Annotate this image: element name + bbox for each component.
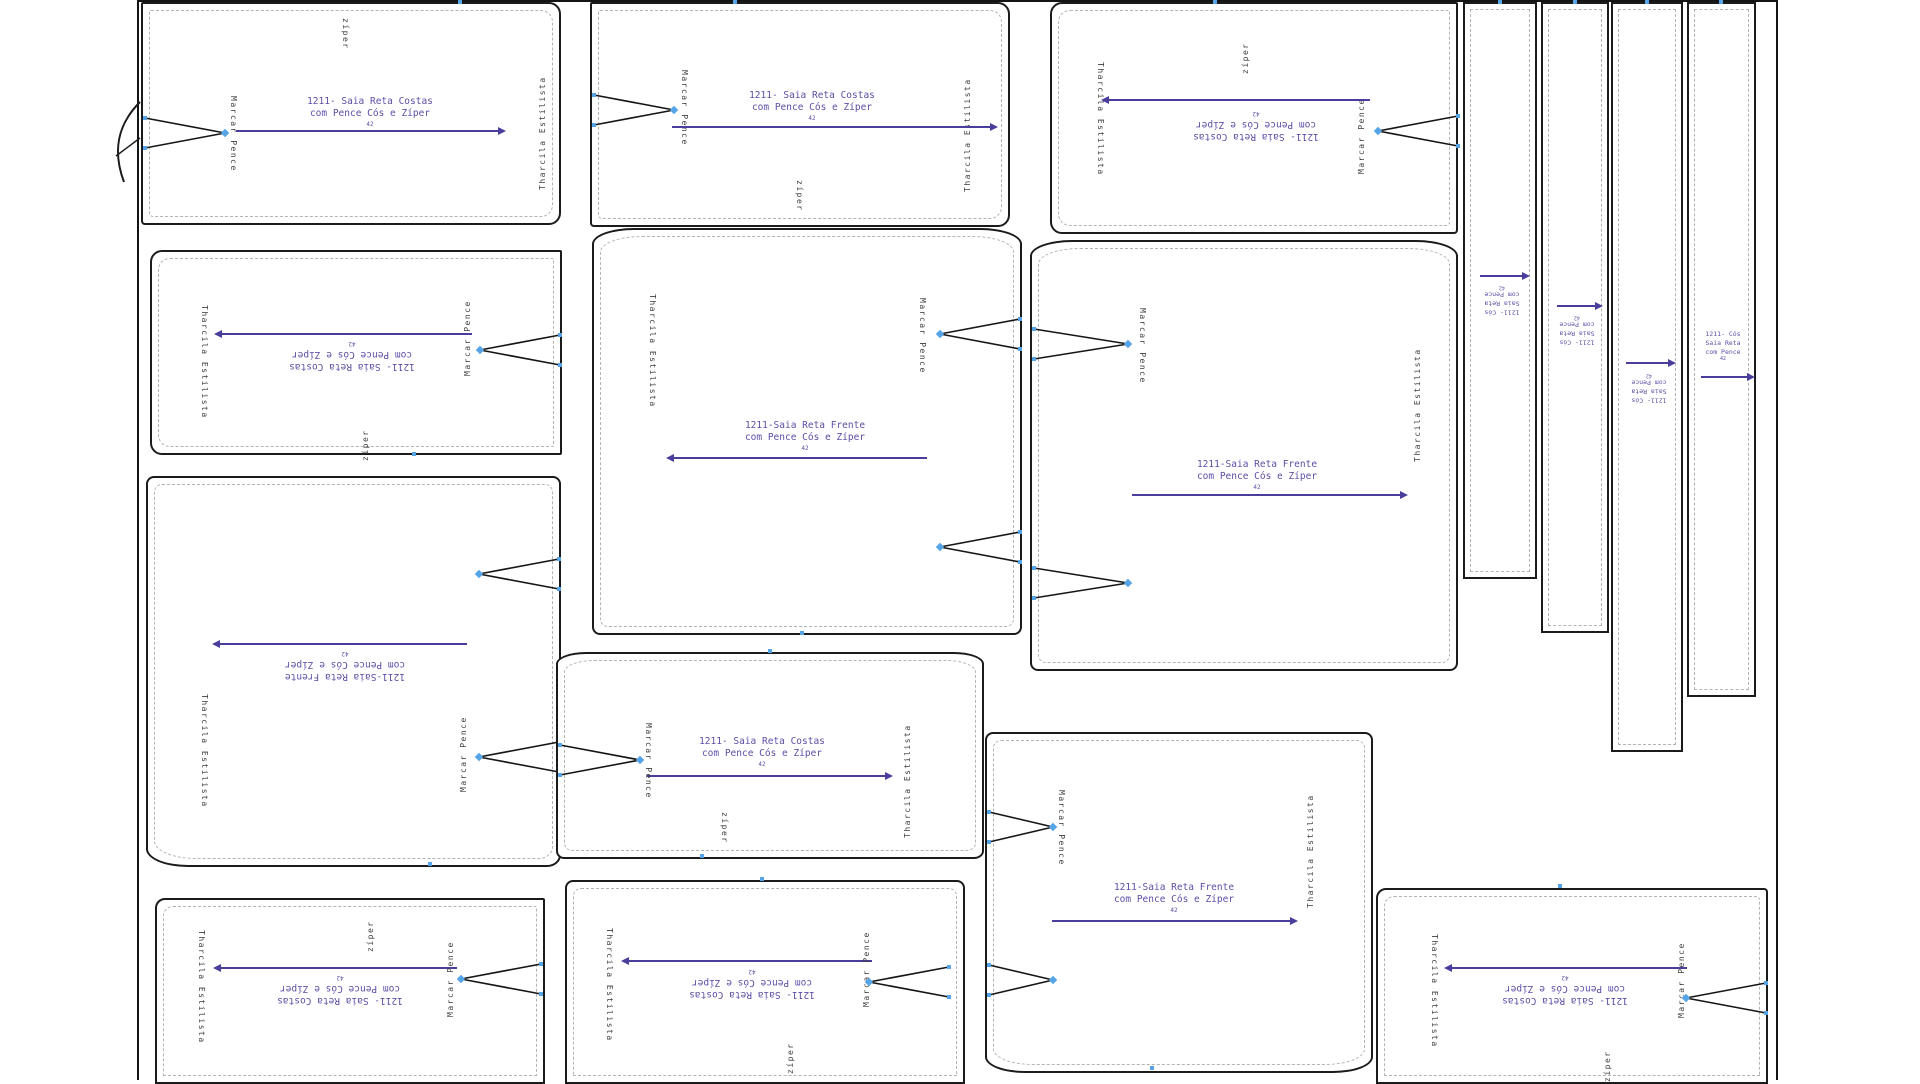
dart-mark [475,739,561,775]
pattern-piece-waistband-3[interactable]: 1211- Cós Saia Reta com Pence42 [1611,2,1683,752]
dart-mark [936,529,1022,565]
pattern-piece-back-b[interactable]: zíper Tharcila Estilista Marcar Pence 12… [590,2,1010,227]
piece-label: 1211- Saia Reta Costas com Pence Cós e Z… [712,90,912,122]
dart-mark [558,742,644,778]
grainline-arrow [218,643,467,645]
designer-label: Tharcila Estilista [1430,934,1438,1068]
notch-dot [1558,884,1562,888]
designer-label: Tharcila Estilista [197,930,205,1064]
grainline-arrow [1450,967,1687,969]
notch-dot [1719,0,1723,4]
size-label: 42 [1617,372,1681,378]
pattern-piece-waistband-1[interactable]: 1211- Cós Saia Reta com Pence42 [1463,2,1537,579]
pattern-piece-back-a[interactable]: zíper Tharcila Estilista Marcar Pence 12… [141,2,561,225]
grainline-arrow [220,333,472,335]
zipper-label: zíper [362,415,370,461]
piece-label: 1211- Saia Reta Costas com Pence Cós e Z… [662,736,862,768]
pattern-piece-back-j[interactable]: Tharcila Estilista zíper 1211- Saia Reta… [155,898,545,1084]
size-label: 42 [662,761,862,768]
piece-label: 1211- Saia Reta Costas com Pence Cós e Z… [652,968,852,1000]
grainline-arrow [1557,305,1597,307]
size-label: 42 [252,340,452,347]
pence-label: Marcar Pence [1358,106,1366,174]
designer-label: Tharcila Estilista [648,294,656,428]
designer-label: Tharcila Estilista [200,694,208,828]
dart-mark [1682,980,1768,1016]
designer-label: Tharcila Estilista [200,305,208,437]
zipper-label: zíper [367,908,375,952]
dart-mark [476,332,562,368]
pattern-piece-front-f[interactable]: Tharcila Estilista 1211-Saia Reta Frente… [1030,240,1458,671]
pattern-piece-back-l[interactable]: Tharcila Estilista 1211- Saia Reta Costa… [1376,888,1768,1084]
piece-label: 1211- Saia Reta Costas com Pence Cós e Z… [252,340,452,372]
pence-label: Marcar Pence [1057,790,1065,848]
designer-label: Tharcila Estilista [1307,774,1315,908]
piece-label: 1211-Saia Reta Frente com Pence Cós e Zí… [705,420,905,452]
size-label: 42 [1156,110,1356,117]
piece-label: 1211- Saia Reta Costas com Pence Cós e Z… [1465,974,1665,1006]
pence-label: Marcar Pence [464,310,472,376]
grainline-arrow [672,126,992,128]
piece-label: 1211- Cós Saia Reta com Pence42 [1691,330,1755,362]
grainline-arrow [672,457,927,459]
dart-mark [1374,113,1460,149]
pence-label: Marcar Pence [1138,308,1146,388]
pattern-piece-front-i[interactable]: Tharcila Estilista 1211-Saia Reta Frente… [985,732,1373,1073]
piece-label: 1211-Saia Reta Frente com Pence Cós e Zí… [1074,882,1274,914]
piece-label: 1211-Saia Reta Frente com Pence Cós e Zí… [1157,459,1357,491]
grainline-arrow [219,967,457,969]
notch-dot [700,854,704,858]
designer-label: Tharcila Estilista [1096,62,1104,198]
dart-mark [475,556,561,592]
zipper-label: zíper [795,180,803,224]
designer-label: Tharcila Estilista [605,928,613,1062]
pattern-piece-back-d[interactable]: Tharcila Estilista 1211- Saia Reta Costa… [150,250,562,455]
notch-dot [412,452,416,456]
pattern-piece-back-h[interactable]: Tharcila Estilista 1211- Saia Reta Costa… [556,652,984,859]
designer-label: Tharcila Estilista [1414,328,1422,462]
pattern-piece-waistband-2[interactable]: 1211- Cós Saia Reta com Pence42 [1541,2,1609,633]
marker-canvas: zíper Tharcila Estilista Marcar Pence 12… [0,0,1920,1080]
notch-dot [1645,0,1649,4]
grainline-arrow [1052,920,1292,922]
pence-label: Marcar Pence [447,955,455,1017]
piece-label: 1211- Saia Reta Costas com Pence Cós e Z… [240,974,440,1006]
size-label: 42 [1074,907,1274,914]
size-label: 42 [270,121,470,128]
size-label: 42 [1470,284,1534,290]
designer-label: Tharcila Estilista [539,56,547,190]
notch-dot [1150,1066,1154,1070]
dart-mark [1032,565,1132,601]
size-label: 42 [1545,314,1609,320]
pence-label: Marcar Pence [460,728,468,792]
notch-dot [458,0,462,4]
grainline-arrow [1480,275,1524,277]
grainline-arrow [236,130,500,132]
pence-label: Marcar Pence [644,723,652,785]
notch-dot [1498,0,1502,4]
size-label: 42 [1691,356,1755,362]
grainline-arrow [647,775,887,777]
piece-label: 1211- Cós Saia Reta com Pence42 [1470,284,1534,316]
size-label: 42 [245,650,445,657]
zipper-label: zíper [1604,1038,1612,1082]
zipper-label: zíper [1242,30,1250,74]
notch-dot [733,0,737,4]
designer-label: Tharcila Estilista [904,704,912,838]
cutoff-fragment [110,100,142,184]
piece-label: 1211-Saia Reta Frente com Pence Cós e Zí… [245,650,445,682]
notch-dot [1573,0,1577,4]
pattern-piece-front-e[interactable]: Tharcila Estilista 1211-Saia Reta Frente… [592,228,1022,635]
grainline-arrow [1107,99,1370,101]
zipper-label: zíper [720,812,728,858]
grainline-arrow [1626,362,1670,364]
size-label: 42 [1465,974,1665,981]
pattern-piece-front-g[interactable]: Tharcila Estilista 1211-Saia Reta Frente… [146,476,561,867]
dart-mark [143,115,229,151]
pattern-piece-back-c[interactable]: zíper Tharcila Estilista Marcar Pence 12… [1050,2,1458,234]
marker-boundary-right [1776,0,1778,1080]
piece-label: 1211- Saia Reta Costas com Pence Cós e Z… [1156,110,1356,142]
designer-label: Tharcila Estilista [964,58,972,192]
size-label: 42 [240,974,440,981]
dart-mark [936,316,1022,352]
pence-label: Marcar Pence [918,298,926,364]
size-label: 42 [652,968,852,975]
dart-mark [457,961,543,997]
size-label: 42 [705,445,905,452]
zipper-label: zíper [341,18,349,62]
dart-mark [1032,326,1132,362]
piece-label: 1211- Saia Reta Costas com Pence Cós e Z… [270,96,470,128]
notch-dot [800,631,804,635]
dart-mark [987,809,1057,845]
size-label: 42 [712,115,912,122]
notch-dot [760,877,764,881]
piece-label: 1211- Cós Saia Reta com Pence42 [1545,314,1609,346]
pattern-piece-back-k[interactable]: Tharcila Estilista 1211- Saia Reta Costa… [565,880,965,1084]
dart-mark [865,964,951,1000]
grainline-arrow [1701,376,1749,378]
size-label: 42 [1157,484,1357,491]
notch-dot [768,649,772,653]
dart-mark [592,92,678,128]
dart-mark [987,962,1057,998]
notch-dot [1213,0,1217,4]
grainline-arrow [627,960,872,962]
grainline-arrow [1132,494,1402,496]
zipper-label: zíper [787,1030,795,1074]
piece-label: 1211- Cós Saia Reta com Pence42 [1617,372,1681,404]
pattern-piece-waistband-4[interactable]: 1211- Cós Saia Reta com Pence42 [1687,2,1756,697]
notch-dot [428,862,432,866]
